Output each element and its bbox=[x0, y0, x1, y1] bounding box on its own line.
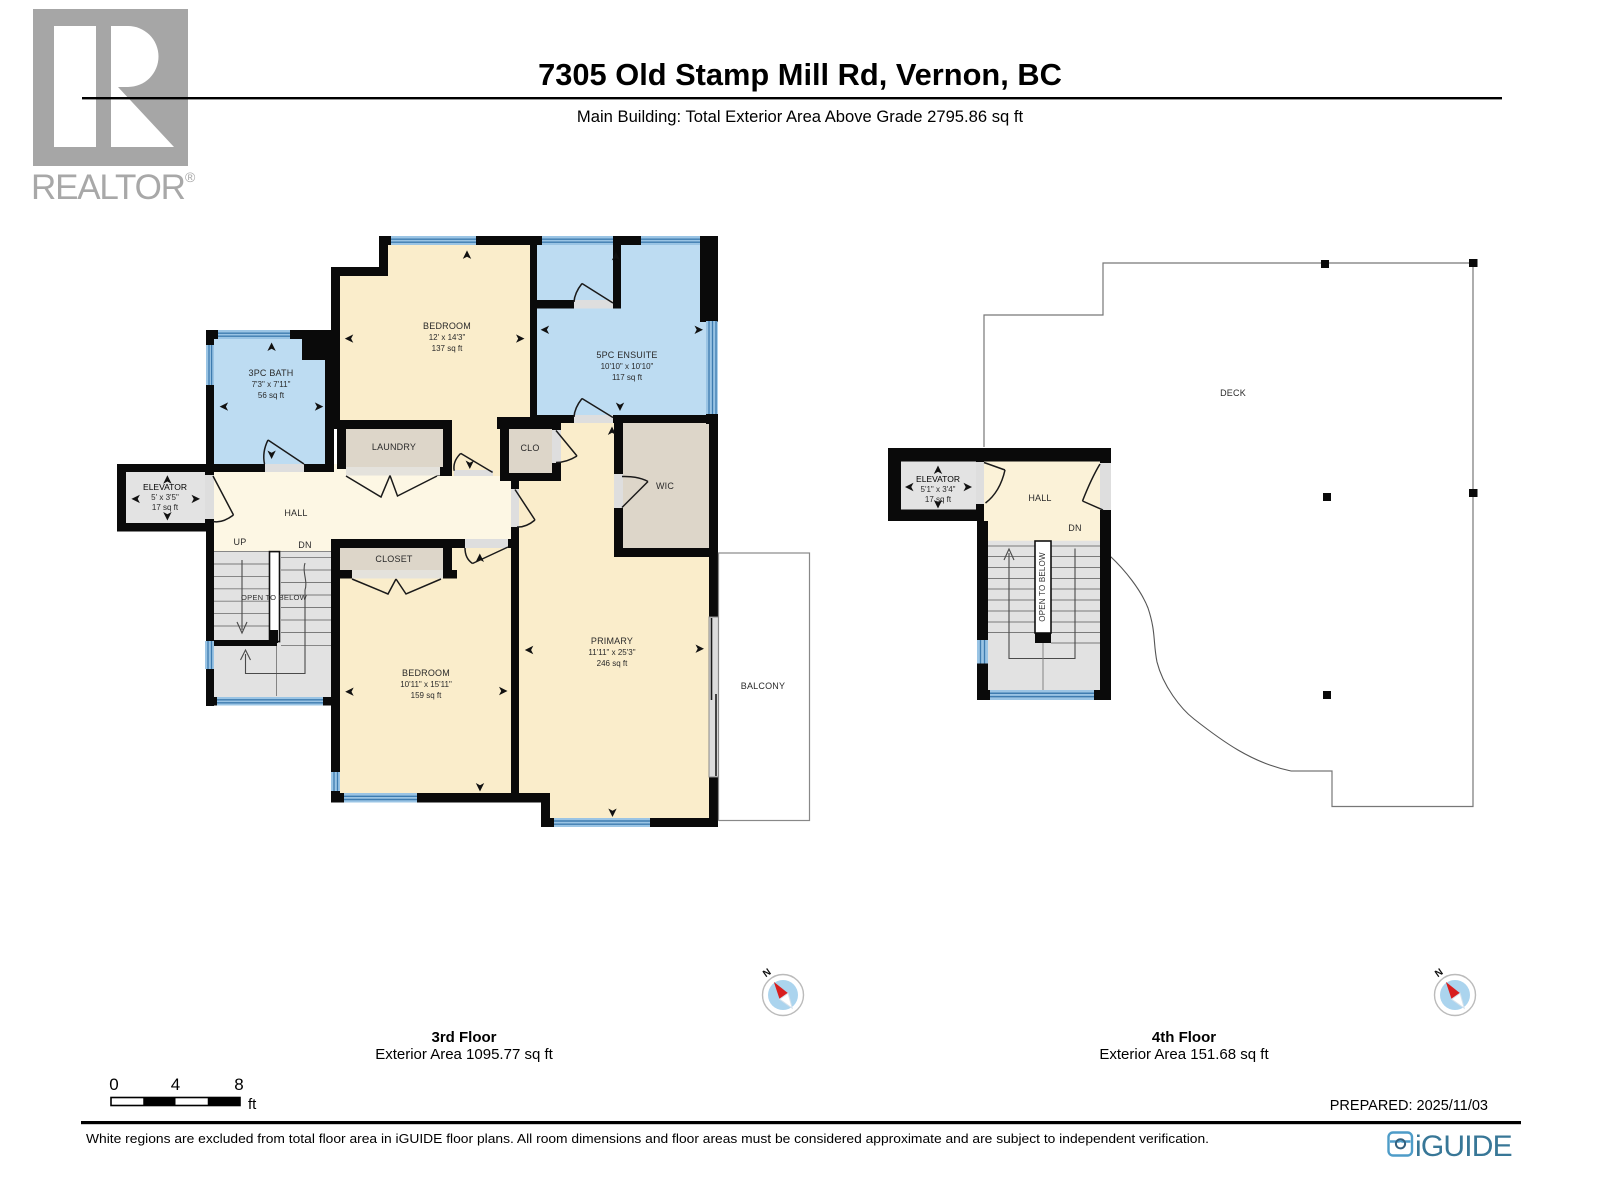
svg-text:PREPARED: 2025/11/03: PREPARED: 2025/11/03 bbox=[1330, 1098, 1488, 1114]
svg-text:PRIMARY: PRIMARY bbox=[591, 636, 633, 646]
svg-text:DN: DN bbox=[298, 540, 311, 550]
svg-text:OPEN TO BELOW: OPEN TO BELOW bbox=[1038, 552, 1047, 622]
svg-text:Exterior Area 151.68 sq ft: Exterior Area 151.68 sq ft bbox=[1099, 1046, 1269, 1063]
svg-text:LAUNDRY: LAUNDRY bbox=[372, 442, 416, 452]
svg-text:3PC BATH: 3PC BATH bbox=[249, 368, 294, 378]
svg-text:4th Floor: 4th Floor bbox=[1152, 1029, 1216, 1046]
svg-text:Main Building: Total Exterior: Main Building: Total Exterior Area Above… bbox=[577, 107, 1024, 126]
svg-text:OPEN TO BELOW: OPEN TO BELOW bbox=[241, 593, 308, 602]
svg-text:11'11" x 25'3": 11'11" x 25'3" bbox=[588, 648, 635, 657]
svg-text:246 sq ft: 246 sq ft bbox=[597, 659, 628, 668]
svg-text:UP: UP bbox=[234, 537, 247, 547]
svg-text:REALTOR: REALTOR bbox=[31, 168, 185, 207]
svg-text:DN: DN bbox=[1068, 523, 1081, 533]
svg-text:ELEVATOR: ELEVATOR bbox=[916, 474, 960, 484]
svg-text:®: ® bbox=[185, 169, 196, 185]
svg-text:137 sq ft: 137 sq ft bbox=[432, 344, 463, 353]
svg-text:ELEVATOR: ELEVATOR bbox=[143, 482, 187, 492]
svg-text:5'1" x 3'4": 5'1" x 3'4" bbox=[921, 485, 956, 494]
svg-text:ft: ft bbox=[248, 1096, 257, 1113]
svg-text:17 sq ft: 17 sq ft bbox=[152, 503, 179, 512]
svg-text:7'3" x 7'11": 7'3" x 7'11" bbox=[252, 380, 291, 389]
svg-text:Exterior Area 1095.77 sq ft: Exterior Area 1095.77 sq ft bbox=[375, 1046, 553, 1063]
svg-text:CLOSET: CLOSET bbox=[375, 554, 413, 564]
svg-text:iGUIDE: iGUIDE bbox=[1415, 1130, 1512, 1163]
svg-text:DECK: DECK bbox=[1220, 388, 1246, 398]
svg-text:159 sq ft: 159 sq ft bbox=[411, 691, 442, 700]
svg-text:12' x 14'3": 12' x 14'3" bbox=[429, 333, 466, 342]
svg-text:56 sq ft: 56 sq ft bbox=[258, 391, 285, 400]
svg-text:10'10" x 10'10": 10'10" x 10'10" bbox=[601, 362, 654, 371]
svg-text:White regions are excluded fro: White regions are excluded from total fl… bbox=[86, 1131, 1209, 1146]
svg-text:4: 4 bbox=[171, 1075, 180, 1094]
svg-text:CLO: CLO bbox=[520, 443, 539, 453]
svg-text:5' x 3'5": 5' x 3'5" bbox=[151, 493, 179, 502]
svg-text:5PC ENSUITE: 5PC ENSUITE bbox=[596, 350, 657, 360]
svg-text:7305 Old Stamp Mill Rd, Vernon: 7305 Old Stamp Mill Rd, Vernon, BC bbox=[538, 57, 1062, 92]
svg-text:BEDROOM: BEDROOM bbox=[423, 321, 471, 331]
svg-text:WIC: WIC bbox=[656, 481, 674, 491]
svg-text:117 sq ft: 117 sq ft bbox=[612, 373, 643, 382]
svg-text:8: 8 bbox=[234, 1075, 243, 1094]
svg-text:3rd Floor: 3rd Floor bbox=[431, 1029, 496, 1046]
svg-text:HALL: HALL bbox=[284, 508, 307, 518]
svg-text:BEDROOM: BEDROOM bbox=[402, 668, 450, 678]
svg-text:10'11" x 15'11": 10'11" x 15'11" bbox=[400, 680, 452, 689]
svg-text:0: 0 bbox=[109, 1075, 118, 1094]
svg-text:BALCONY: BALCONY bbox=[741, 681, 785, 691]
svg-text:HALL: HALL bbox=[1028, 493, 1051, 503]
